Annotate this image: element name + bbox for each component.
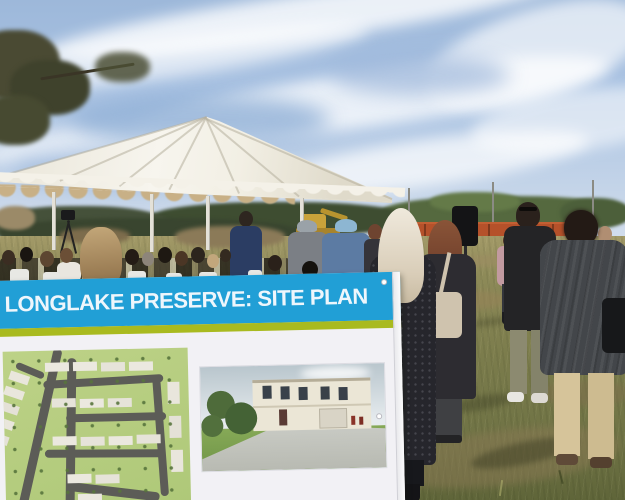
black-bag bbox=[602, 298, 625, 353]
attendee-head bbox=[125, 249, 139, 265]
tree-foliage bbox=[95, 52, 150, 82]
site-plan-image bbox=[3, 348, 192, 500]
rendered-figure-red bbox=[359, 417, 363, 425]
person-head bbox=[239, 211, 253, 227]
attendee-head bbox=[40, 251, 54, 267]
person-leg bbox=[510, 330, 527, 394]
sign-board: LONGLAKE PRESERVE: SITE PLAN bbox=[0, 272, 405, 500]
blue-sky-patch bbox=[330, 55, 510, 95]
tent-pole bbox=[52, 192, 56, 250]
camera-body bbox=[61, 210, 75, 220]
rendered-figure-red bbox=[351, 416, 355, 425]
event-photo: LONGLAKE PRESERVE: SITE PLAN bbox=[0, 0, 625, 500]
tent-pole bbox=[150, 194, 154, 252]
attendee-head bbox=[207, 254, 219, 268]
site-plan-trees bbox=[3, 348, 192, 500]
sunglasses bbox=[519, 207, 537, 211]
attendee-head bbox=[175, 251, 188, 266]
tent-pole bbox=[206, 196, 210, 250]
attendee-head bbox=[20, 247, 33, 262]
person-leg-khaki bbox=[554, 373, 580, 456]
attendee-head bbox=[268, 255, 282, 271]
house-rendering-image bbox=[199, 362, 387, 472]
attendee-head bbox=[191, 247, 205, 263]
attendee-head bbox=[220, 249, 231, 262]
attendee-head bbox=[142, 252, 154, 266]
standing-person-gray-puffer bbox=[540, 210, 625, 465]
attendee-head bbox=[2, 250, 15, 265]
attendee-head bbox=[60, 248, 73, 263]
rendered-door bbox=[279, 409, 287, 425]
rendered-garage bbox=[319, 408, 347, 429]
rendered-windows bbox=[262, 386, 271, 399]
white-sneaker bbox=[507, 392, 524, 402]
attendee-head bbox=[158, 247, 172, 263]
sign-title: LONGLAKE PRESERVE: SITE PLAN bbox=[0, 283, 368, 318]
person-head bbox=[516, 202, 540, 228]
brown-shoe bbox=[590, 457, 612, 468]
knit-cap bbox=[335, 219, 357, 232]
brown-shoe bbox=[556, 454, 578, 465]
flat-cap bbox=[297, 220, 317, 232]
camera-tripod bbox=[58, 208, 82, 254]
person-leg-khaki bbox=[588, 373, 614, 459]
